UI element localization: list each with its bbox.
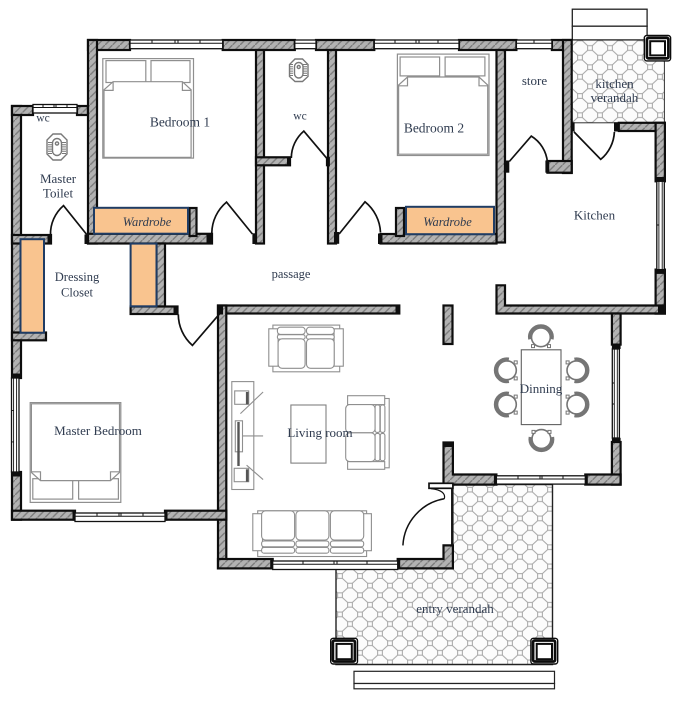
svg-text:wc: wc (293, 111, 306, 123)
svg-text:store: store (522, 73, 548, 88)
svg-text:Dressing: Dressing (55, 270, 100, 284)
svg-text:entry verandah: entry verandah (416, 601, 494, 616)
svg-text:verandah: verandah (591, 90, 639, 105)
svg-text:Wardrobe: Wardrobe (123, 215, 172, 229)
svg-text:Living room: Living room (287, 425, 352, 440)
svg-text:wc: wc (36, 113, 49, 125)
svg-text:Master: Master (40, 171, 77, 186)
svg-text:Master Bedroom: Master Bedroom (54, 423, 142, 438)
svg-text:passage: passage (272, 267, 311, 281)
svg-text:Toilet: Toilet (43, 186, 74, 201)
svg-text:Bedroom 1: Bedroom 1 (150, 115, 210, 130)
svg-text:Wardrobe: Wardrobe (423, 215, 472, 229)
svg-text:Closet: Closet (61, 286, 93, 300)
svg-text:Bedroom 2: Bedroom 2 (404, 121, 464, 136)
svg-text:Dinning: Dinning (520, 381, 563, 396)
svg-text:kitchen: kitchen (595, 76, 634, 91)
svg-text:Kitchen: Kitchen (574, 208, 616, 223)
